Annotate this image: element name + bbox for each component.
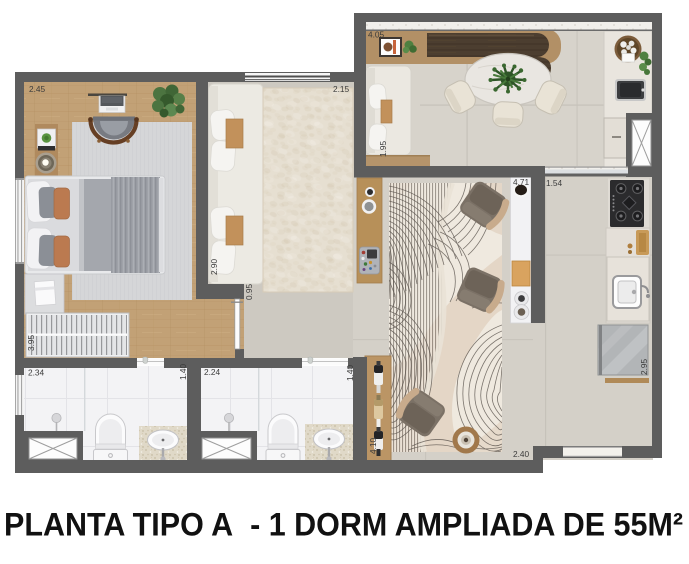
svg-text:3.95: 3.95 [26, 334, 36, 351]
svg-text:2.15: 2.15 [333, 84, 350, 94]
svg-text:PLANTA TIPO A - 1 DORM AMPLIA: PLANTA TIPO A - 1 DORM AMPLIADA DE 55M² [4, 507, 683, 543]
svg-text:2.45: 2.45 [29, 84, 46, 94]
svg-text:2.24: 2.24 [204, 367, 221, 377]
svg-text:2.40: 2.40 [513, 449, 530, 459]
svg-text:1.95: 1.95 [378, 140, 388, 157]
svg-text:4.71: 4.71 [513, 177, 530, 187]
svg-text:1.54: 1.54 [546, 178, 563, 188]
svg-text:4.10: 4.10 [368, 437, 378, 454]
svg-text:4.05: 4.05 [368, 30, 385, 40]
svg-text:0.95: 0.95 [244, 283, 254, 300]
svg-text:2.95: 2.95 [639, 358, 649, 375]
svg-text:1.40: 1.40 [178, 363, 188, 380]
svg-text:1.40: 1.40 [345, 364, 355, 381]
svg-text:2.34: 2.34 [28, 368, 45, 378]
svg-text:2.90: 2.90 [209, 258, 219, 275]
